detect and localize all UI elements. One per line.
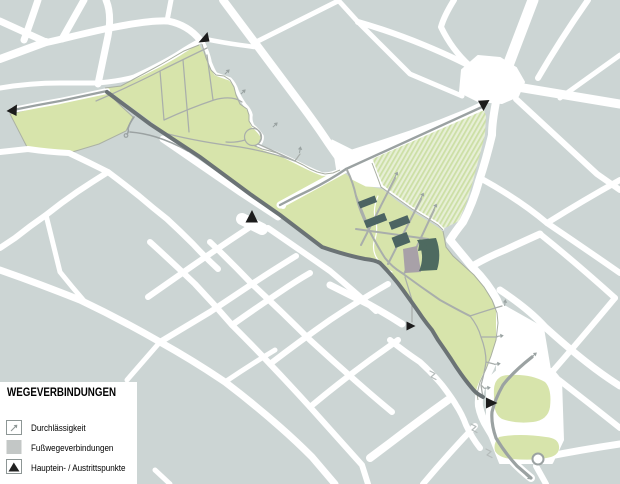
svg-text:WEGEVERBINDUNGEN: WEGEVERBINDUNGEN — [7, 386, 116, 399]
svg-text:Hauptein- / Austrittspunkte: Hauptein- / Austrittspunkte — [31, 462, 126, 473]
svg-text:Fußwegeverbindungen: Fußwegeverbindungen — [31, 442, 114, 453]
svg-text:Durchlässigkeit: Durchlässigkeit — [31, 422, 86, 433]
